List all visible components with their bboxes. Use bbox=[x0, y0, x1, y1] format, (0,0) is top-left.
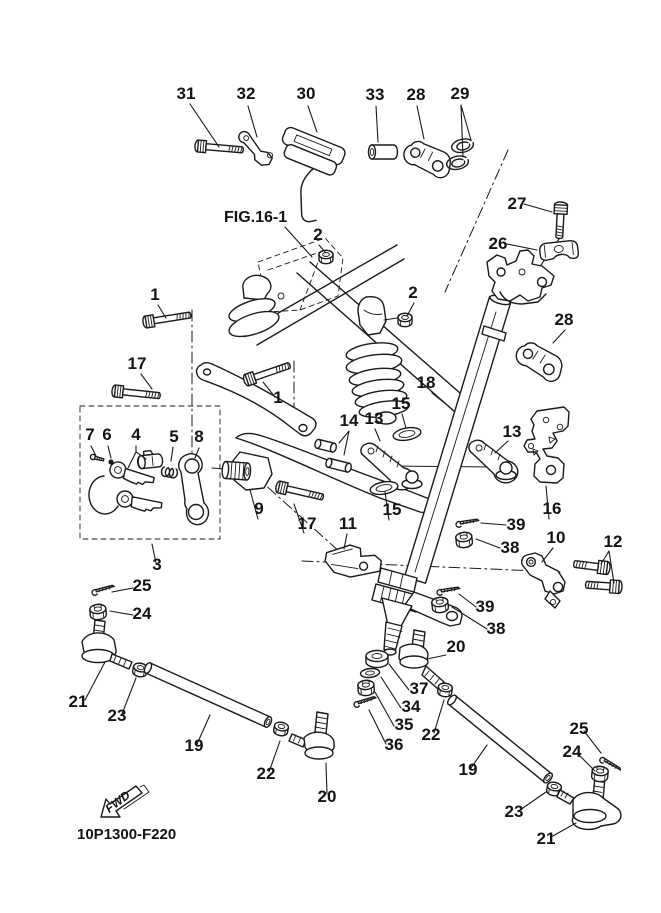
callout-label: 10 bbox=[547, 528, 566, 547]
part-27-bolt bbox=[553, 202, 568, 239]
parts-diagram-canvas: FWD 31 32 30 33 28 29 27 2 26 2 28 1 17 … bbox=[0, 0, 661, 913]
part-33-collar bbox=[369, 145, 398, 159]
callout-label: 32 bbox=[237, 84, 256, 103]
fwd-arrow: FWD bbox=[101, 785, 149, 817]
part-13-arm-right bbox=[469, 440, 518, 483]
callout-label: 39 bbox=[507, 515, 526, 534]
callout-label: 26 bbox=[489, 234, 508, 253]
callout-label: 13 bbox=[365, 409, 384, 428]
callout-label: 20 bbox=[447, 637, 466, 656]
part-36-cotter-pin bbox=[353, 695, 377, 708]
callout-label: 34 bbox=[402, 697, 421, 716]
callout-label: 38 bbox=[487, 619, 506, 638]
callout-label: 3 bbox=[152, 555, 161, 574]
part-17-bolt-right bbox=[275, 480, 325, 503]
callout-label: 15 bbox=[392, 394, 411, 413]
callout-label: 31 bbox=[177, 84, 196, 103]
callout-label: 12 bbox=[604, 532, 623, 551]
part-11-clamp bbox=[324, 543, 382, 579]
part-1-bolt-left bbox=[142, 309, 192, 328]
callout-label: 15 bbox=[383, 500, 402, 519]
diagram-code-label: 10P1300-F220 bbox=[77, 826, 176, 843]
callout-label: 17 bbox=[128, 354, 147, 373]
callout-label: 38 bbox=[501, 538, 520, 557]
part-12-bolts bbox=[573, 557, 622, 593]
part-25-cotter-pin-left bbox=[91, 584, 115, 596]
lock-kit-box bbox=[80, 406, 220, 539]
part-21-tie-rod-end-left bbox=[82, 620, 132, 669]
callout-label: 35 bbox=[395, 715, 414, 734]
part-22-nut-right bbox=[437, 682, 453, 697]
part-2-nut-b bbox=[398, 313, 412, 326]
callout-label: 16 bbox=[543, 499, 562, 518]
part-10-arm bbox=[522, 553, 565, 608]
callout-label: 30 bbox=[297, 84, 316, 103]
callout-label: 14 bbox=[340, 411, 359, 430]
part-38-castle-nut-b bbox=[431, 597, 449, 614]
callout-label: 2 bbox=[313, 225, 322, 244]
part-8-plate bbox=[179, 454, 209, 525]
callout-label: 28 bbox=[407, 85, 426, 104]
callout-label: 37 bbox=[410, 679, 429, 698]
callout-label: 24 bbox=[133, 604, 152, 623]
part-35-castle-nut bbox=[358, 680, 375, 696]
part-5-spring bbox=[161, 467, 178, 479]
callout-label: 11 bbox=[339, 514, 357, 533]
callout-label: 18 bbox=[417, 373, 436, 392]
part-39-cotter-pin-b bbox=[437, 585, 461, 595]
callout-label: 5 bbox=[169, 427, 178, 446]
part-4-keys bbox=[89, 461, 163, 514]
callout-label: 21 bbox=[537, 829, 556, 848]
callout-label: 25 bbox=[570, 719, 589, 738]
callout-label: 19 bbox=[185, 736, 204, 755]
part-34-washer bbox=[360, 668, 380, 679]
callout-label: 8 bbox=[194, 427, 203, 446]
part-38-castle-nut-a bbox=[455, 532, 473, 549]
callout-label: 6 bbox=[102, 425, 111, 444]
callout-label: 7 bbox=[85, 425, 94, 444]
part-16-bracket bbox=[524, 407, 569, 483]
callout-label: 33 bbox=[366, 85, 385, 104]
callout-label: 21 bbox=[69, 692, 88, 711]
part-28-holder-lower bbox=[512, 340, 566, 383]
part-21-tie-rod-end-right bbox=[557, 776, 621, 829]
part-9-bushing bbox=[222, 461, 252, 480]
part-4-lock-cylinder bbox=[137, 450, 164, 470]
part-24-castle-nut-left bbox=[90, 604, 107, 620]
callout-label: 28 bbox=[555, 310, 574, 329]
callout-label: 1 bbox=[150, 285, 159, 304]
callout-label: 1 bbox=[273, 388, 282, 407]
callout-label: 29 bbox=[451, 84, 470, 103]
part-31-bolt bbox=[194, 140, 243, 156]
part-1-bolt-right bbox=[242, 360, 292, 387]
callout-label: 19 bbox=[459, 760, 478, 779]
callout-label: 39 bbox=[476, 597, 495, 616]
callout-label: 2 bbox=[408, 283, 417, 302]
callout-label: 25 bbox=[133, 576, 152, 595]
part-17-bolt-left bbox=[111, 385, 160, 402]
part-37-bushing bbox=[366, 651, 388, 668]
callout-label: 9 bbox=[254, 499, 263, 518]
part-24-castle-nut-right bbox=[591, 766, 608, 783]
callout-label: 23 bbox=[505, 802, 524, 821]
part-22-nut-left bbox=[273, 721, 289, 737]
callout-label: 22 bbox=[422, 725, 441, 744]
callout-label: 17 bbox=[298, 514, 317, 533]
part-7-screw bbox=[90, 454, 104, 462]
part-28-holder-top bbox=[401, 140, 452, 179]
callout-label: 20 bbox=[318, 787, 337, 806]
part-26-holder bbox=[539, 240, 579, 262]
part-39-cotter-pin-a bbox=[456, 517, 480, 527]
callout-label: 27 bbox=[508, 194, 527, 213]
figure-reference-label: FIG.16-1 bbox=[224, 209, 287, 226]
callout-label: 23 bbox=[108, 706, 127, 725]
callout-label: 13 bbox=[503, 422, 522, 441]
part-20-tie-rod-end-left bbox=[289, 712, 334, 759]
callout-label: 22 bbox=[257, 764, 276, 783]
callout-label: 36 bbox=[385, 735, 404, 754]
part-2-nut-a bbox=[319, 250, 333, 263]
callout-label: 4 bbox=[131, 425, 141, 444]
callout-label: 24 bbox=[563, 742, 582, 761]
